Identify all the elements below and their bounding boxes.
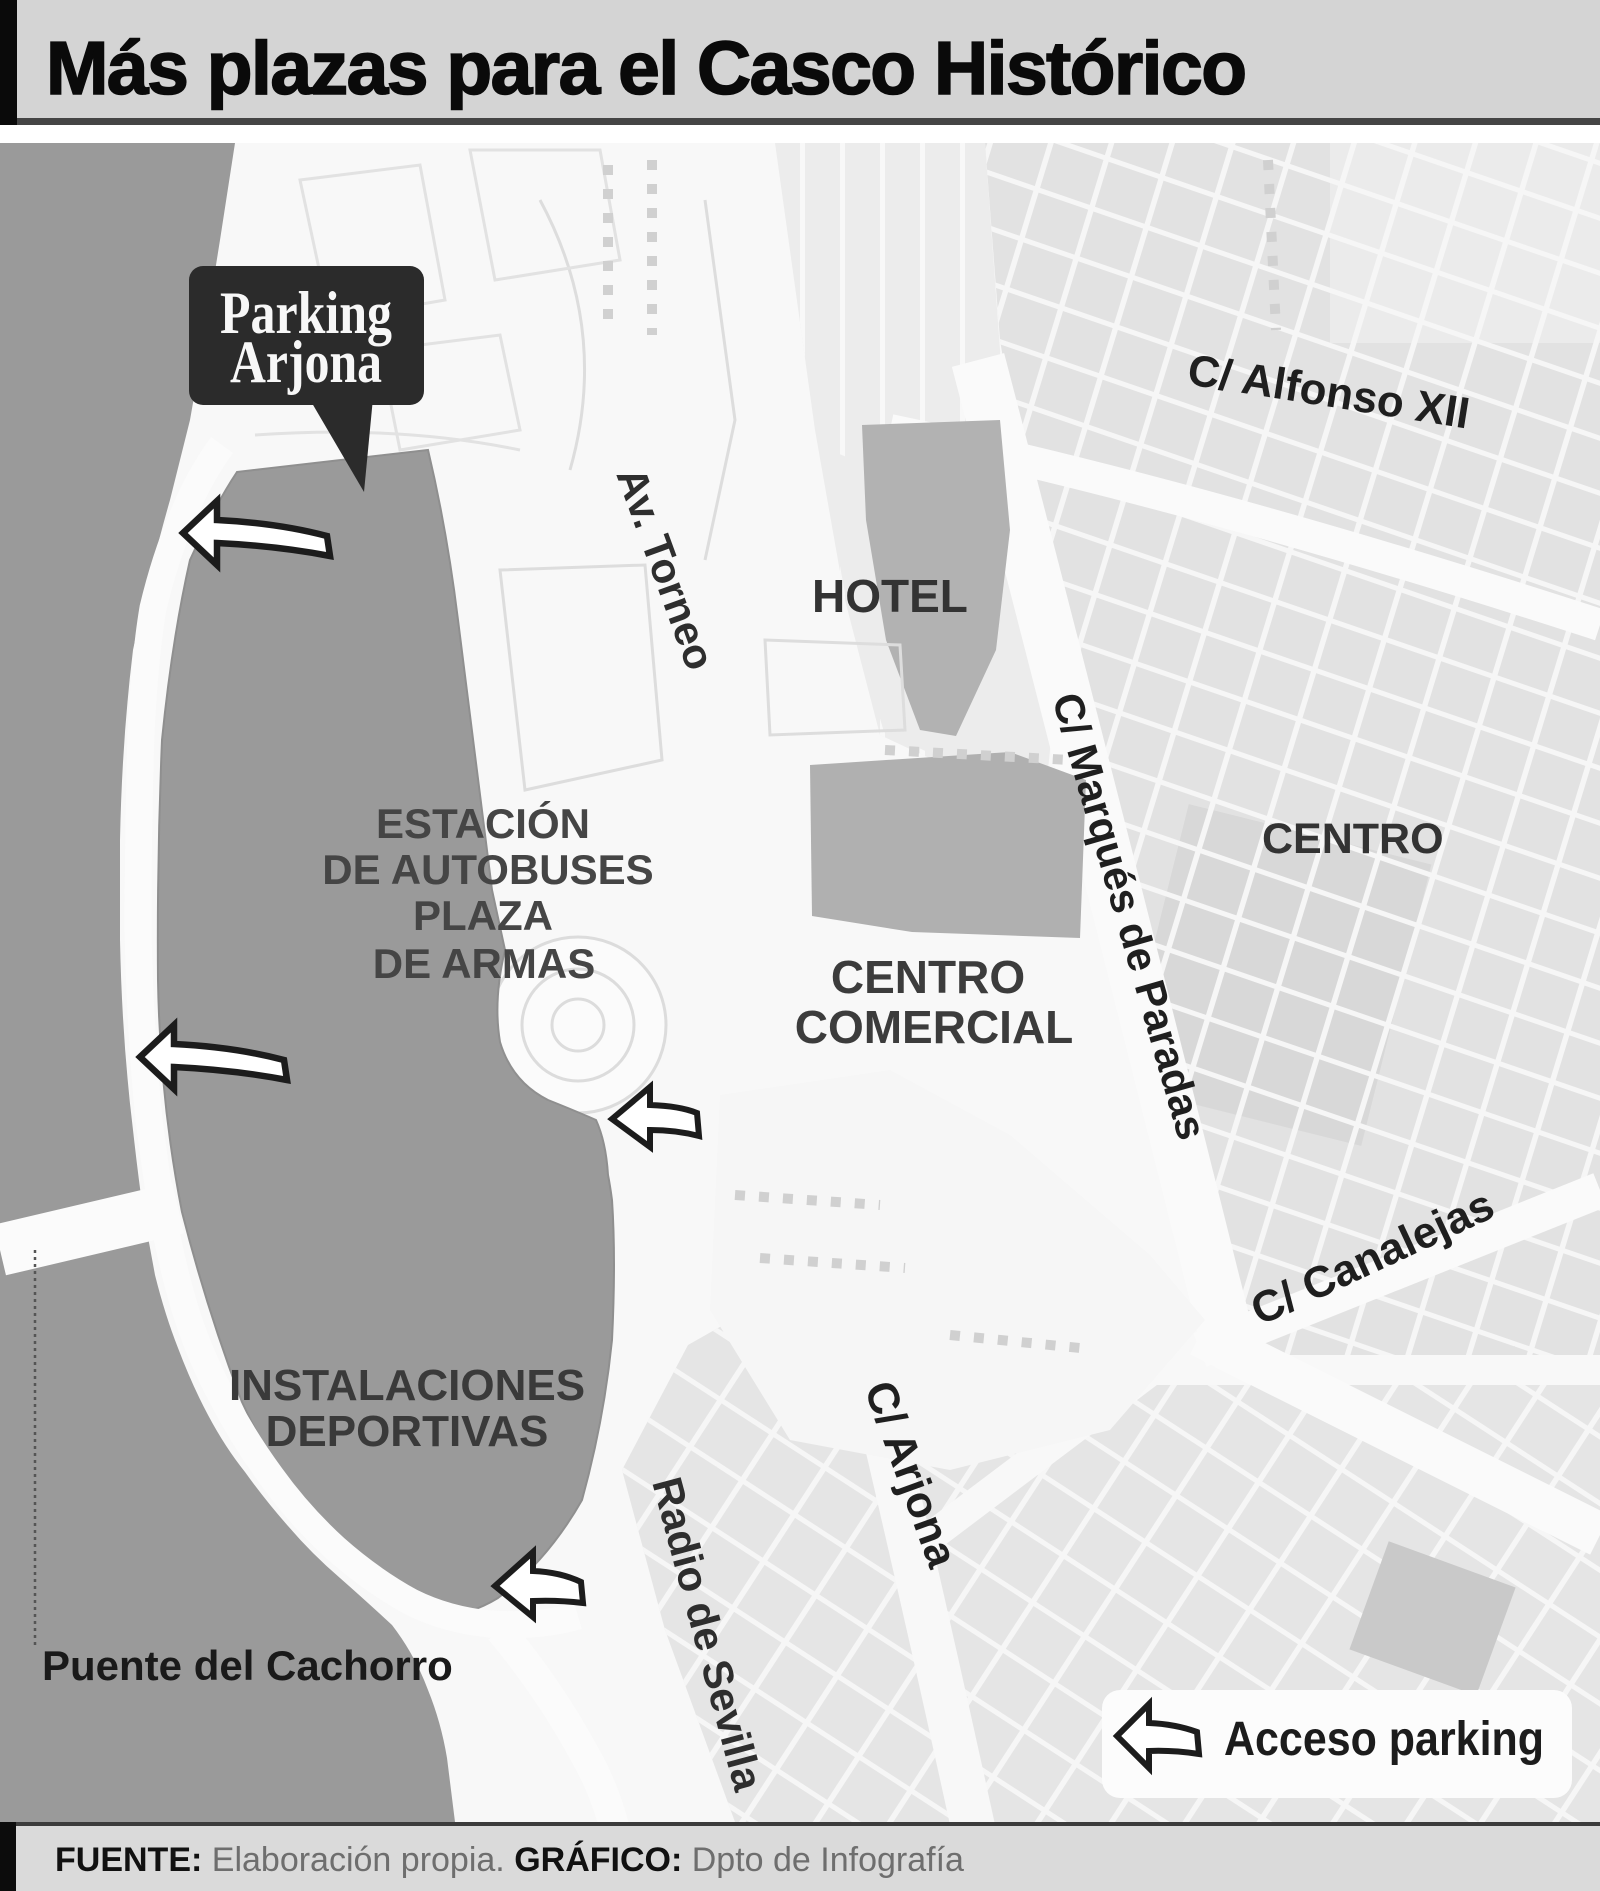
svg-text:Arjona: Arjona [230,329,382,395]
svg-text:INSTALACIONES: INSTALACIONES [229,1361,585,1410]
svg-text:PLAZA: PLAZA [413,892,553,939]
svg-text:DE AUTOBUSES: DE AUTOBUSES [322,846,653,893]
svg-text:COMERCIAL: COMERCIAL [795,1001,1074,1053]
svg-text:DEPORTIVAS: DEPORTIVAS [266,1407,549,1456]
svg-text:ESTACIÓN: ESTACIÓN [376,799,590,847]
svg-text:Puente del Cachorro: Puente del Cachorro [42,1642,453,1689]
svg-text:CENTRO: CENTRO [1262,815,1444,863]
svg-text:DE ARMAS: DE ARMAS [373,940,595,987]
svg-text:Más plazas para el Casco Histó: Más plazas para el Casco Histórico [46,26,1246,110]
svg-text:Acceso parking: Acceso parking [1224,1713,1544,1766]
svg-text:FUENTE: Elaboración propia. GR: FUENTE: Elaboración propia. GRÁFICO: Dpt… [55,1841,964,1879]
svg-text:CENTRO: CENTRO [831,951,1025,1003]
svg-text:HOTEL: HOTEL [812,570,968,622]
